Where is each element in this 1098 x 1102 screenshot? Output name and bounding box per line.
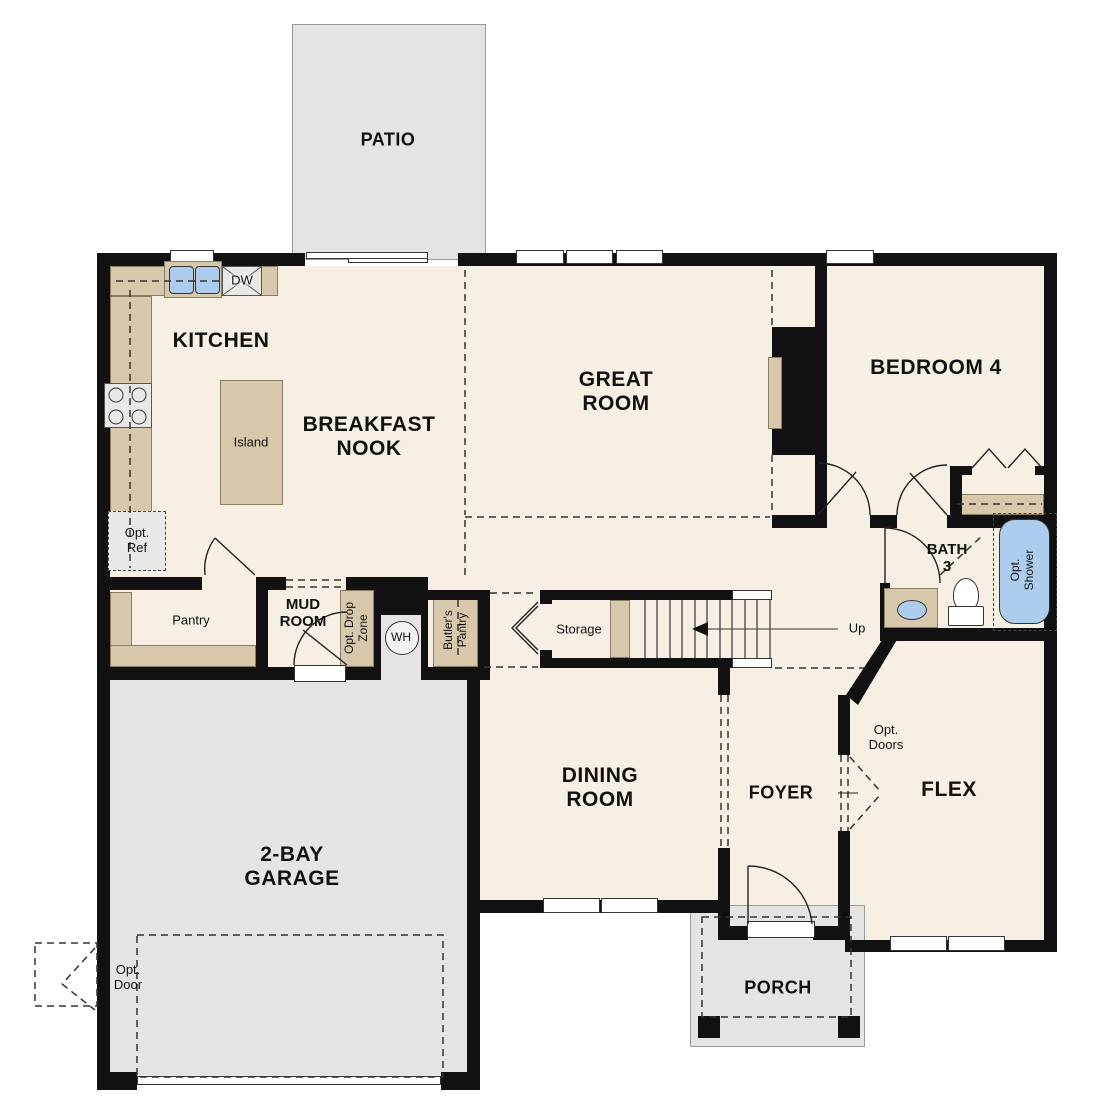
wall [441, 1072, 480, 1090]
bedroom4-label: BEDROOM 4 [870, 356, 1002, 380]
wall [838, 695, 850, 755]
toilet-tank [948, 606, 984, 626]
dining-room-label: DINING ROOM [562, 764, 639, 812]
patio-slider-door [348, 258, 428, 263]
wall [97, 1072, 137, 1090]
opt-ref-label: Opt. Ref [125, 526, 150, 556]
flex-label: FLEX [921, 778, 977, 802]
sink-basin [169, 266, 194, 294]
wall [467, 667, 480, 1090]
pantry-label: Pantry [172, 614, 210, 629]
garage-label: 2-BAY GARAGE [244, 843, 339, 891]
wall [718, 926, 748, 940]
door-threshold [294, 665, 346, 682]
opt-door-label: Opt. Door [114, 963, 142, 993]
window [890, 936, 947, 951]
stair-railing [732, 658, 772, 668]
wall [950, 466, 962, 528]
wall [815, 266, 827, 528]
pantry-shelf-bottom [110, 645, 256, 667]
dishwasher-label: DW [231, 274, 253, 289]
wall [540, 590, 732, 600]
porch-label: PORCH [744, 978, 812, 999]
window [566, 250, 613, 264]
porch-column [698, 1016, 720, 1038]
opt-drop-zone-label: Opt. Drop Zone [343, 602, 371, 654]
storage-label: Storage [556, 623, 602, 638]
window [543, 898, 600, 913]
stove [104, 383, 152, 428]
wall [374, 615, 381, 680]
wall [838, 831, 850, 940]
wall [772, 515, 818, 528]
wh-label: WH [391, 631, 411, 645]
patio-label: PATIO [361, 130, 416, 151]
stair-shelf [610, 600, 630, 658]
wall [428, 667, 480, 680]
wall [346, 577, 374, 590]
wall [540, 590, 552, 604]
window [826, 250, 874, 264]
wall [97, 253, 110, 1090]
butlers-pantry-label: Butler's Pantry [442, 610, 470, 650]
stair-railing [732, 590, 772, 600]
porch-column [838, 1016, 860, 1038]
great-room-label: GREAT ROOM [579, 368, 653, 416]
island-label: Island [234, 436, 269, 451]
wall [256, 577, 268, 680]
wall [421, 615, 428, 680]
window [616, 250, 663, 264]
opt-shower-label: Opt. Shower [1009, 550, 1037, 591]
window [601, 898, 658, 913]
opt-doors-label: Opt. Doors [869, 723, 904, 753]
garage-door [137, 1076, 441, 1085]
foyer-label: FOYER [749, 783, 814, 804]
wall [870, 515, 897, 528]
wall [110, 577, 202, 590]
stairs-up-label: Up [849, 622, 866, 637]
closet-shelf [955, 494, 1044, 515]
wall [950, 466, 972, 475]
front-door-threshold [747, 921, 815, 938]
wall [540, 658, 732, 668]
sink-basin [195, 266, 220, 294]
wall [540, 650, 552, 668]
breakfast-nook-label: BREAKFAST NOOK [303, 413, 436, 461]
vanity-sink [897, 600, 927, 620]
bath3-label: BATH 3 [927, 541, 968, 576]
wall [718, 658, 730, 695]
wall [374, 577, 428, 615]
window [516, 250, 564, 264]
mud-room-label: MUD ROOM [280, 596, 327, 631]
window [948, 936, 1005, 951]
kitchen-label: KITCHEN [173, 329, 270, 353]
floorplan: PATIO KITCHEN BREAKFAST NOOK GREAT ROOM … [0, 0, 1098, 1102]
fireplace-insert [768, 357, 782, 429]
exterior-mask [480, 913, 720, 953]
wall [1035, 466, 1044, 475]
